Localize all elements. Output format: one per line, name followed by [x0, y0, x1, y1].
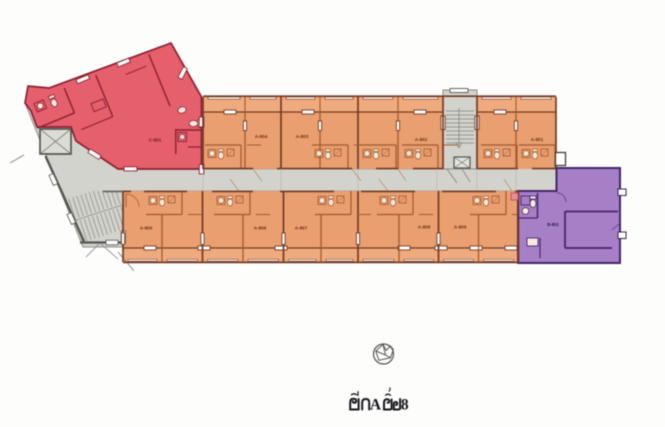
svg-text:A: A [370, 397, 382, 414]
svg-text:A-805: A-805 [140, 226, 153, 231]
svg-text:A-807: A-807 [295, 226, 308, 231]
svg-text:C-801: C-801 [149, 138, 162, 143]
svg-text:A-801: A-801 [531, 137, 544, 142]
svg-text:B-802: B-802 [547, 222, 559, 227]
svg-text:A-808: A-808 [418, 225, 431, 230]
svg-text:A-804: A-804 [255, 134, 268, 139]
svg-text:A-803: A-803 [296, 134, 309, 139]
svg-text:A-806: A-806 [254, 226, 267, 231]
svg-text:A-802: A-802 [415, 137, 428, 142]
svg-text:A-809: A-809 [454, 225, 467, 230]
svg-text:8: 8 [401, 397, 409, 414]
